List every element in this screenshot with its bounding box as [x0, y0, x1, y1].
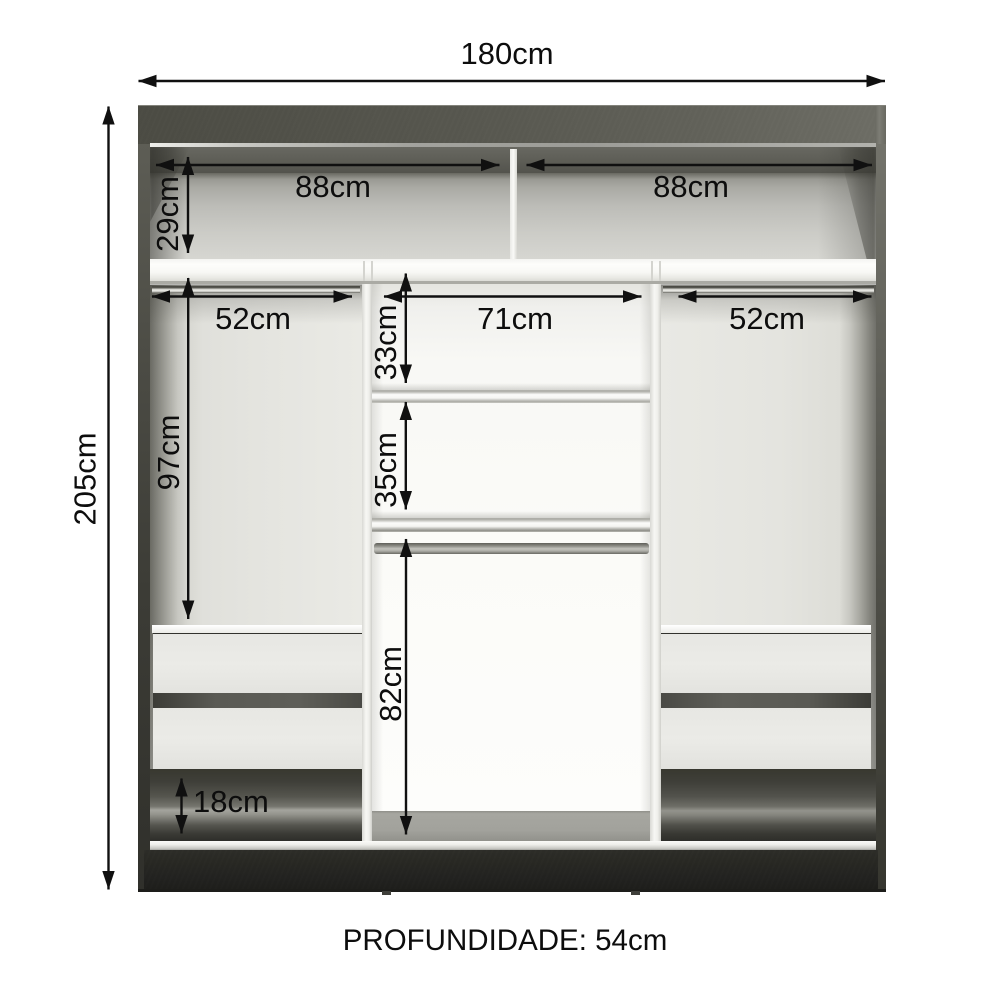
- svg-text:33cm: 33cm: [368, 305, 403, 381]
- svg-text:180cm: 180cm: [460, 36, 553, 71]
- svg-text:18cm: 18cm: [193, 784, 269, 819]
- svg-text:82cm: 82cm: [373, 646, 408, 722]
- svg-text:52cm: 52cm: [215, 301, 291, 336]
- svg-text:205cm: 205cm: [68, 432, 103, 525]
- svg-text:35cm: 35cm: [368, 432, 403, 508]
- svg-text:88cm: 88cm: [653, 169, 729, 204]
- svg-text:29cm: 29cm: [150, 176, 185, 252]
- svg-text:88cm: 88cm: [295, 169, 371, 204]
- svg-text:71cm: 71cm: [477, 301, 553, 336]
- svg-text:52cm: 52cm: [729, 301, 805, 336]
- svg-text:PROFUNDIDADE: 54cm: PROFUNDIDADE: 54cm: [343, 924, 668, 957]
- svg-text:97cm: 97cm: [151, 415, 186, 491]
